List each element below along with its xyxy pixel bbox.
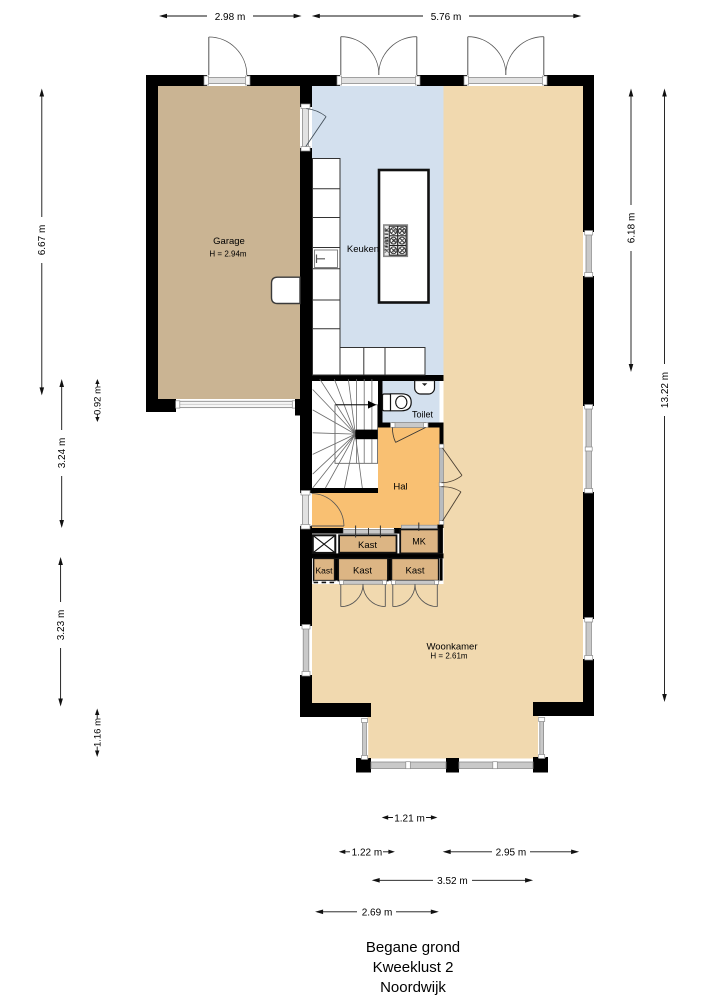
svg-text:Garage: Garage bbox=[213, 236, 245, 247]
svg-text:1.16 m: 1.16 m bbox=[92, 718, 103, 747]
svg-text:Begane grond: Begane grond bbox=[366, 939, 460, 956]
svg-text:Kast: Kast bbox=[405, 566, 424, 577]
svg-text:2.69 m: 2.69 m bbox=[362, 908, 393, 919]
svg-text:1.21 m: 1.21 m bbox=[394, 813, 425, 824]
svg-text:13.22 m: 13.22 m bbox=[660, 372, 671, 408]
svg-text:Kast: Kast bbox=[353, 566, 372, 577]
svg-text:2.95 m: 2.95 m bbox=[496, 848, 527, 859]
svg-text:Hal: Hal bbox=[393, 482, 407, 493]
svg-text:3.23 m: 3.23 m bbox=[56, 610, 67, 641]
svg-text:Keuken: Keuken bbox=[347, 244, 379, 255]
svg-text:3.52 m: 3.52 m bbox=[437, 876, 468, 887]
svg-text:Toilet: Toilet bbox=[412, 410, 434, 420]
svg-text:3.24 m: 3.24 m bbox=[57, 438, 68, 469]
svg-text:Noordwijk: Noordwijk bbox=[380, 979, 446, 996]
svg-text:6.67 m: 6.67 m bbox=[37, 225, 48, 256]
svg-text:Kweeklust 2: Kweeklust 2 bbox=[373, 959, 454, 976]
svg-text:0.92 m: 0.92 m bbox=[93, 386, 104, 415]
svg-text:2.98 m: 2.98 m bbox=[215, 12, 246, 23]
svg-text:Kast: Kast bbox=[358, 540, 377, 551]
svg-text:6.18 m: 6.18 m bbox=[626, 213, 637, 244]
svg-text:1.22 m: 1.22 m bbox=[352, 848, 383, 859]
svg-text:MK: MK bbox=[412, 537, 426, 547]
svg-text:H = 2.61m: H = 2.61m bbox=[430, 652, 467, 661]
svg-text:Kast: Kast bbox=[315, 566, 333, 576]
svg-text:5.76 m: 5.76 m bbox=[431, 12, 462, 23]
svg-text:H = 2.94m: H = 2.94m bbox=[209, 250, 246, 259]
